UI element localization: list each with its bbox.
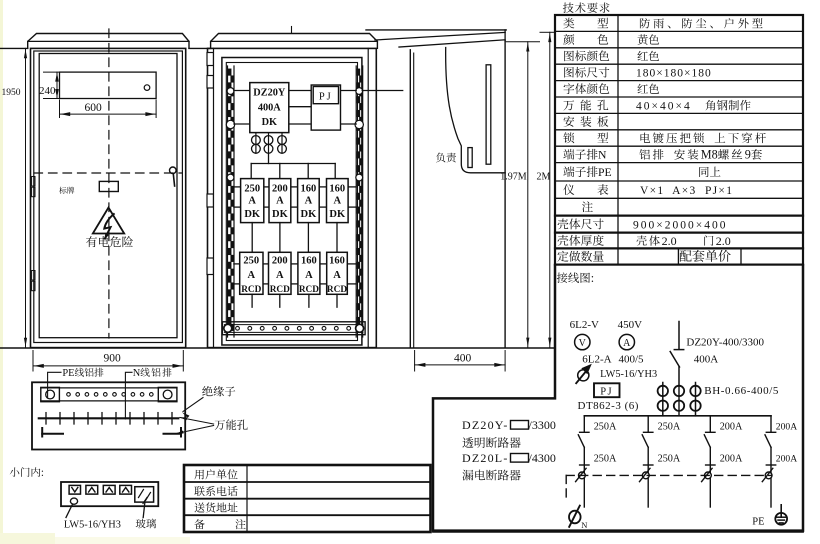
svg-text:DK: DK bbox=[329, 209, 346, 220]
svg-text:180×180×180: 180×180×180 bbox=[636, 68, 712, 80]
svg-text:200A: 200A bbox=[776, 421, 797, 432]
svg-text:BH-0.66-400/5: BH-0.66-400/5 bbox=[704, 385, 779, 397]
svg-text:600: 600 bbox=[85, 102, 103, 114]
svg-text:LW5-16/YH3: LW5-16/YH3 bbox=[64, 520, 121, 531]
svg-text:DK: DK bbox=[272, 209, 289, 220]
svg-text:RCD: RCD bbox=[241, 285, 261, 295]
svg-text:PJ: PJ bbox=[600, 386, 613, 397]
svg-text:1950: 1950 bbox=[2, 88, 21, 98]
svg-text:40×40×4: 40×40×4 bbox=[636, 101, 692, 113]
svg-text:200: 200 bbox=[272, 256, 288, 267]
svg-text:A: A bbox=[333, 270, 341, 281]
svg-text:250A: 250A bbox=[658, 421, 681, 432]
svg-text:RCD: RCD bbox=[270, 285, 290, 295]
svg-text::: : bbox=[591, 271, 594, 285]
svg-text:240: 240 bbox=[39, 85, 56, 97]
svg-text:400A: 400A bbox=[694, 354, 719, 366]
svg-text:160: 160 bbox=[301, 256, 317, 267]
svg-text:N: N bbox=[133, 368, 141, 379]
svg-text:DK: DK bbox=[262, 117, 277, 128]
svg-text:250: 250 bbox=[243, 256, 259, 267]
svg-text:RCD: RCD bbox=[327, 285, 347, 295]
svg-text:6L2-A: 6L2-A bbox=[582, 354, 611, 366]
svg-text:200: 200 bbox=[272, 184, 288, 195]
svg-text:DZ20Y: DZ20Y bbox=[253, 88, 286, 99]
svg-text:RCD: RCD bbox=[299, 285, 319, 295]
svg-text:A: A bbox=[334, 195, 342, 206]
svg-text:200A: 200A bbox=[720, 421, 743, 432]
svg-text:N: N bbox=[581, 520, 587, 530]
svg-text:200A: 200A bbox=[720, 454, 743, 465]
svg-text:2.0: 2.0 bbox=[662, 234, 677, 248]
svg-text:2M: 2M bbox=[537, 172, 551, 183]
svg-text:DT862-3 (6): DT862-3 (6) bbox=[578, 400, 639, 412]
svg-text:PJ: PJ bbox=[319, 92, 333, 103]
svg-text:N: N bbox=[598, 149, 607, 162]
svg-text:1.97M: 1.97M bbox=[500, 172, 527, 183]
svg-text:PE: PE bbox=[62, 368, 74, 379]
svg-text:160: 160 bbox=[301, 184, 317, 195]
svg-text:V: V bbox=[579, 338, 587, 349]
svg-text:160: 160 bbox=[329, 184, 345, 195]
svg-text:250A: 250A bbox=[658, 454, 681, 465]
svg-text:A: A bbox=[305, 195, 313, 206]
svg-text:DK: DK bbox=[301, 209, 318, 220]
svg-text:400/5: 400/5 bbox=[619, 354, 645, 366]
svg-text:A: A bbox=[623, 338, 631, 349]
svg-text:DZ20L-: DZ20L- bbox=[462, 451, 509, 465]
svg-text:6L2-V: 6L2-V bbox=[570, 319, 599, 331]
svg-text:A: A bbox=[305, 270, 313, 281]
svg-text:M8: M8 bbox=[701, 148, 718, 162]
svg-text:250A: 250A bbox=[594, 421, 617, 432]
svg-text:LW5-16/YH3: LW5-16/YH3 bbox=[600, 369, 657, 380]
svg-text:250: 250 bbox=[244, 184, 260, 195]
svg-text:PE: PE bbox=[752, 517, 764, 528]
svg-text:2.0: 2.0 bbox=[716, 234, 731, 248]
svg-text:400: 400 bbox=[454, 353, 472, 365]
svg-text::: : bbox=[41, 467, 44, 479]
svg-text:400A: 400A bbox=[258, 103, 281, 114]
svg-text:900: 900 bbox=[104, 353, 122, 365]
svg-text:PE: PE bbox=[598, 166, 612, 179]
svg-text:DZ20Y-: DZ20Y- bbox=[462, 418, 509, 432]
svg-text:A: A bbox=[248, 270, 256, 281]
svg-text:900×2000×400: 900×2000×400 bbox=[633, 219, 727, 231]
svg-text:160: 160 bbox=[329, 256, 345, 267]
svg-text:/3300: /3300 bbox=[529, 418, 556, 432]
svg-text:200A: 200A bbox=[776, 454, 797, 465]
svg-text:A: A bbox=[276, 270, 284, 281]
svg-text:A: A bbox=[276, 195, 284, 206]
svg-text:DZ20Y-400/3300: DZ20Y-400/3300 bbox=[686, 336, 764, 348]
svg-text:450V: 450V bbox=[618, 319, 643, 331]
svg-text:A: A bbox=[248, 195, 256, 206]
svg-text:/4300: /4300 bbox=[529, 451, 556, 465]
svg-text:9: 9 bbox=[745, 148, 751, 162]
svg-text:250A: 250A bbox=[594, 454, 617, 465]
svg-text:V×1 A×3 PJ×1: V×1 A×3 PJ×1 bbox=[640, 185, 733, 197]
svg-text:DK: DK bbox=[244, 209, 261, 220]
